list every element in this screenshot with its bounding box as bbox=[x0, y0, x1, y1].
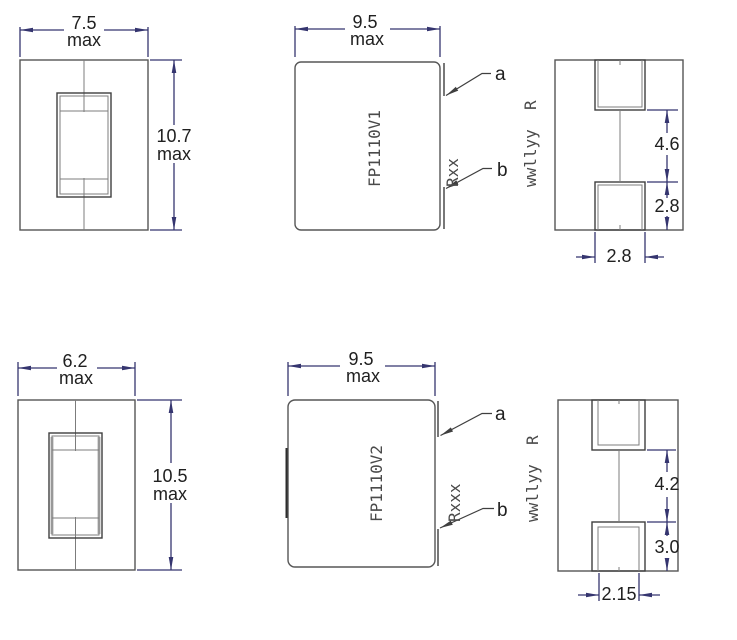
v2-top-width-dim-qualifier: max bbox=[346, 366, 380, 386]
v1-front-flange-lines bbox=[60, 111, 108, 179]
v2-side-top-terminal-inner bbox=[598, 400, 639, 445]
v1-side-bottom-terminal-inner bbox=[598, 185, 642, 230]
v2-front-height-dim-qualifier: max bbox=[153, 484, 187, 504]
v1-side-bottom-terminal bbox=[595, 182, 645, 230]
v1-side-pad-width-dim-value: 2.8 bbox=[606, 246, 631, 266]
v2-front-width-dim-qualifier: max bbox=[59, 368, 93, 388]
v1-side-top-terminal bbox=[595, 60, 645, 110]
v1-top-width-dim-qualifier: max bbox=[350, 29, 384, 49]
v2-side-top-terminal bbox=[592, 400, 645, 450]
v2-side-pad-width-dim-value: 2.15 bbox=[601, 584, 636, 604]
v2-part-marking: FP1110V2 Rxxx wwllyy R bbox=[312, 426, 392, 522]
v2-front-height-dim-value: 10.5 bbox=[152, 466, 187, 486]
v2-side-bottom-terminal-inner bbox=[598, 527, 639, 571]
v2-marking-line-1: FP1110V2 bbox=[364, 426, 390, 522]
v2-front-view: 6.2 max 10.5 max bbox=[18, 351, 188, 570]
v1-side-gap-dim-value: 4.6 bbox=[654, 134, 679, 154]
v2-marking-line-2: Rxxx bbox=[442, 426, 468, 522]
v1-front-height-dim-value: 10.7 bbox=[156, 126, 191, 146]
v2-top-terminal-a-label: a bbox=[495, 404, 506, 425]
v1-side-top-terminal-inner bbox=[598, 60, 642, 107]
v2-front-body-outline bbox=[18, 400, 135, 570]
v2-side-gap-dim-value: 4.2 bbox=[654, 474, 679, 494]
v1-front-height-dim-qualifier: max bbox=[157, 144, 191, 164]
v2-front-flange-lines bbox=[52, 450, 99, 518]
v1-part-marking: FP1110V1 Rxx wwllyy R bbox=[310, 91, 390, 187]
v1-marking-line-1: FP1110V1 bbox=[362, 91, 388, 187]
v1-marking-line-3: wwllyy R bbox=[518, 91, 544, 187]
v1-side-pad-height-dim-value: 2.8 bbox=[654, 196, 679, 216]
package-dimension-drawing: 7.5 max 10.7 max 9.5 max a b 4.6 2.8 bbox=[0, 0, 737, 640]
v1-front-view: 7.5 max 10.7 max bbox=[20, 13, 192, 230]
v1-front-width-dim-qualifier: max bbox=[67, 30, 101, 50]
v1-top-terminal-a-label: a bbox=[495, 64, 506, 85]
v2-side-bottom-terminal bbox=[592, 522, 645, 571]
v2-side-pad-height-dim-value: 3.0 bbox=[654, 537, 679, 557]
v2-marking-line-3: wwllyy R bbox=[520, 426, 546, 522]
v1-marking-line-2: Rxx bbox=[440, 91, 466, 187]
